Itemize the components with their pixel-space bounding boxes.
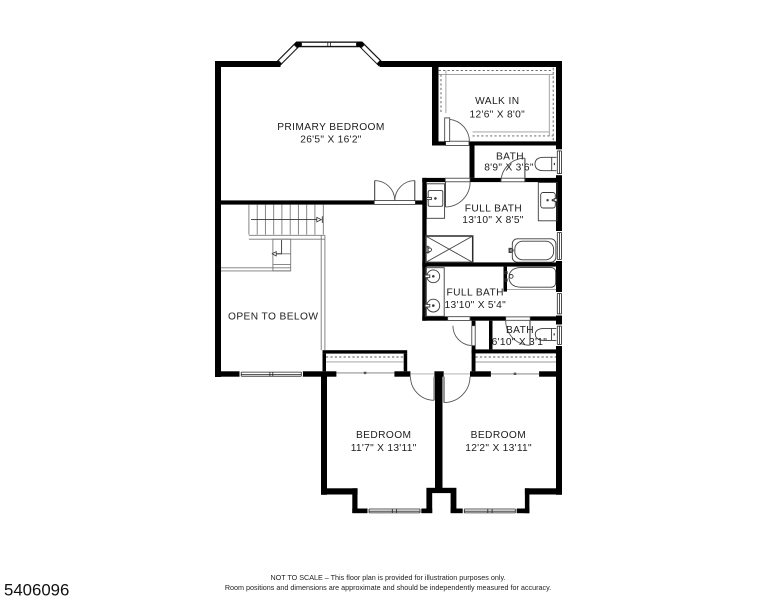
svg-text:WALK IN: WALK IN	[475, 96, 519, 107]
svg-text:FULL BATH: FULL BATH	[465, 204, 522, 215]
svg-text:BEDROOM: BEDROOM	[471, 430, 526, 441]
svg-text:13'10" X 5'4": 13'10" X 5'4"	[445, 300, 507, 311]
svg-text:Room positions and dimensions: Room positions and dimensions are approx…	[225, 583, 551, 592]
svg-text:11'7" X 13'11": 11'7" X 13'11"	[351, 443, 417, 454]
svg-text:5406096: 5406096	[4, 581, 69, 600]
svg-text:OPEN TO BELOW: OPEN TO BELOW	[228, 311, 318, 322]
svg-text:6'10" X 3'1": 6'10" X 3'1"	[492, 337, 548, 348]
svg-text:BATH: BATH	[496, 151, 524, 162]
svg-text:BEDROOM: BEDROOM	[356, 430, 411, 441]
svg-text:BATH: BATH	[506, 325, 534, 336]
svg-text:13'10" X 8'5": 13'10" X 8'5"	[462, 215, 524, 226]
svg-text:8'9" X 3'6": 8'9" X 3'6"	[484, 163, 534, 174]
svg-text:NOT TO SCALE – This floor plan: NOT TO SCALE – This floor plan is provid…	[270, 573, 505, 582]
svg-text:12'2" X 13'11": 12'2" X 13'11"	[465, 443, 532, 454]
svg-text:12'6" X 8'0": 12'6" X 8'0"	[470, 110, 526, 121]
svg-text:26'5" X 16'2": 26'5" X 16'2"	[300, 135, 362, 146]
svg-text:FULL BATH: FULL BATH	[447, 287, 504, 298]
svg-text:PRIMARY BEDROOM: PRIMARY BEDROOM	[277, 122, 385, 133]
